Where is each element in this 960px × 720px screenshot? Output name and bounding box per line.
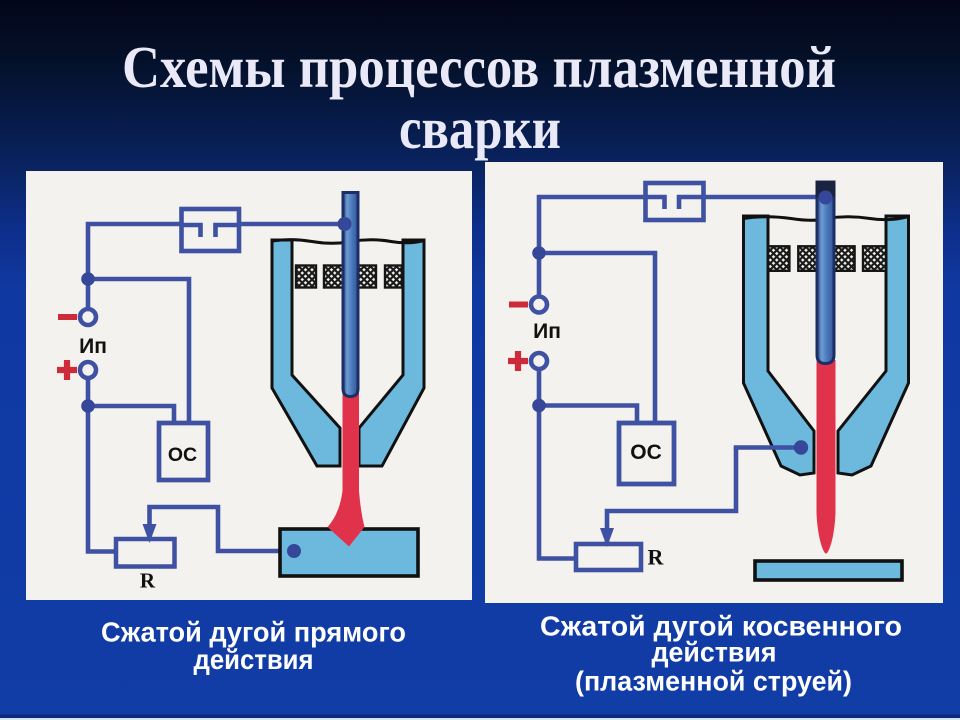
- svg-text:Схемы процессов плазменной: Схемы процессов плазменной: [122, 34, 836, 100]
- svg-text:Сжатой дугой прямого: Сжатой дугой прямого: [101, 617, 406, 648]
- svg-text:R: R: [140, 569, 156, 593]
- svg-text:(плазменной струей): (плазменной струей): [575, 666, 852, 697]
- svg-text:действия: действия: [194, 644, 314, 675]
- svg-text:действия: действия: [652, 637, 777, 668]
- svg-text:ОС: ОС: [168, 444, 197, 466]
- svg-text:ОС: ОС: [630, 441, 662, 464]
- svg-text:R: R: [648, 545, 665, 570]
- svg-text:Ип: Ип: [79, 335, 107, 358]
- svg-text:Ип: Ип: [533, 320, 561, 343]
- svg-text:сварки: сварки: [399, 95, 561, 161]
